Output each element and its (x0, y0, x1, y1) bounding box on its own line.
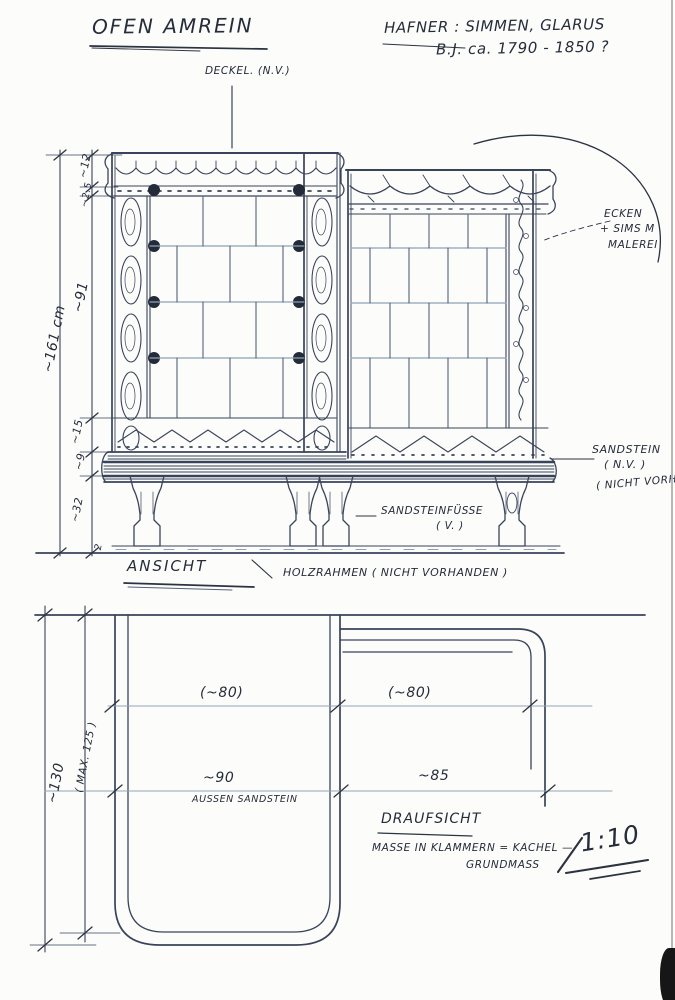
plan-dim-tile-right: (~80) (388, 686, 431, 700)
plan-view-label: DRAUFSICHT (381, 812, 481, 826)
deckel-label: DECKEL. (N.V.) (205, 66, 290, 77)
tile-bosses (148, 184, 305, 364)
scan-corner-artifact (660, 948, 675, 1000)
plan-dim-tile-left: (~80) (200, 686, 243, 700)
fuesse-label-line2: ( V. ) (436, 521, 464, 532)
holzrahmen-label: HOLZRAHMEN ( NICHT VORHANDEN ) (283, 567, 508, 578)
scanned-drawing-page: OFEN AMREIN HAFNER : SIMMEN, GLARUS B.J.… (0, 0, 675, 1000)
stove-plan (30, 593, 645, 952)
ecken-label-line2: + SIMS M (600, 224, 655, 235)
maker-label: HAFNER : SIMMEN, GLARUS (384, 17, 605, 36)
page-title: OFEN AMREIN (92, 15, 254, 36)
plan-material-label: AUSSEN SANDSTEIN (192, 795, 298, 805)
ecken-label-line1: ECKEN (604, 209, 642, 220)
plan-dim-width-right: ~85 (418, 769, 449, 783)
stove-elevation (36, 153, 564, 553)
scan-edge-artifact (671, 0, 673, 1000)
elevation-view-label: ANSICHT (127, 559, 207, 574)
fuesse-label-line1: SANDSTEINFÜSSE (381, 506, 483, 517)
plan-dim-width-left: ~90 (203, 771, 234, 785)
sandstein-label-line2: ( N.V. ) (604, 459, 646, 470)
sandstein-label-line1: SANDSTEIN (592, 444, 661, 455)
plan-note-line2: GRUNDMASS (466, 860, 540, 871)
plan-note-line1: MASSE IN KLAMMERN = KACHEL — (372, 843, 573, 854)
ecken-label-line3: MALEREI (608, 240, 658, 251)
date-label: B.J. ca. 1790 - 1850 ? (436, 39, 609, 57)
drawing-svg (0, 0, 675, 1000)
